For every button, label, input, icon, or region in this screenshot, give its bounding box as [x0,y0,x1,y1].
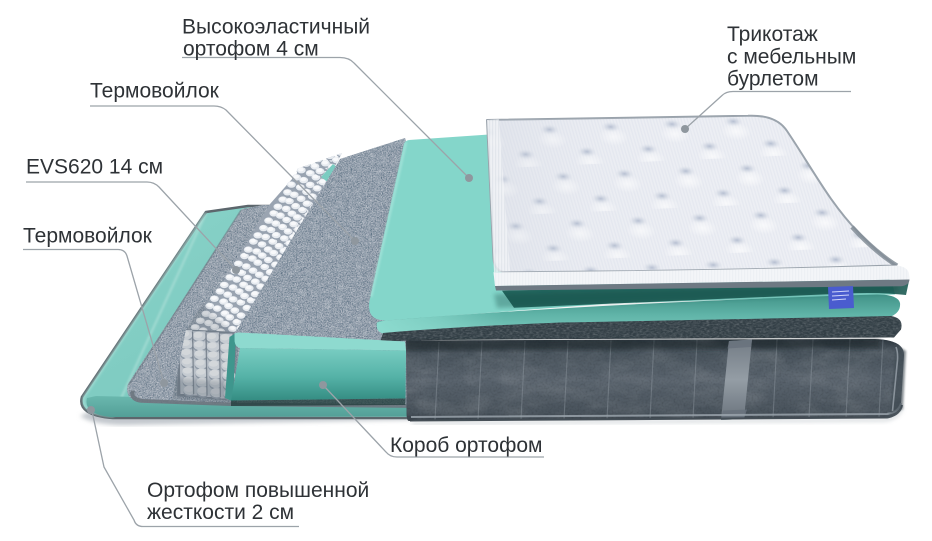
svg-text:Термовойлок: Термовойлок [90,80,220,103]
svg-text:Трикотаж: Трикотаж [727,23,818,46]
svg-text:Короб ортофом: Короб ортофом [390,434,543,457]
svg-text:жесткости 2 см: жесткости 2 см [147,501,294,524]
svg-text:Высокоэластичный: Высокоэластичный [182,16,370,39]
svg-text:Термовойлок: Термовойлок [23,225,153,248]
svg-text:с мебельным: с мебельным [727,46,856,69]
svg-text:ортофом 4 см: ортофом 4 см [183,38,319,61]
svg-text:EVS620 14 см: EVS620 14 см [26,156,163,179]
svg-text:Ортофом повышенной: Ортофом повышенной [147,479,369,502]
svg-text:бурлетом: бурлетом [727,68,819,91]
